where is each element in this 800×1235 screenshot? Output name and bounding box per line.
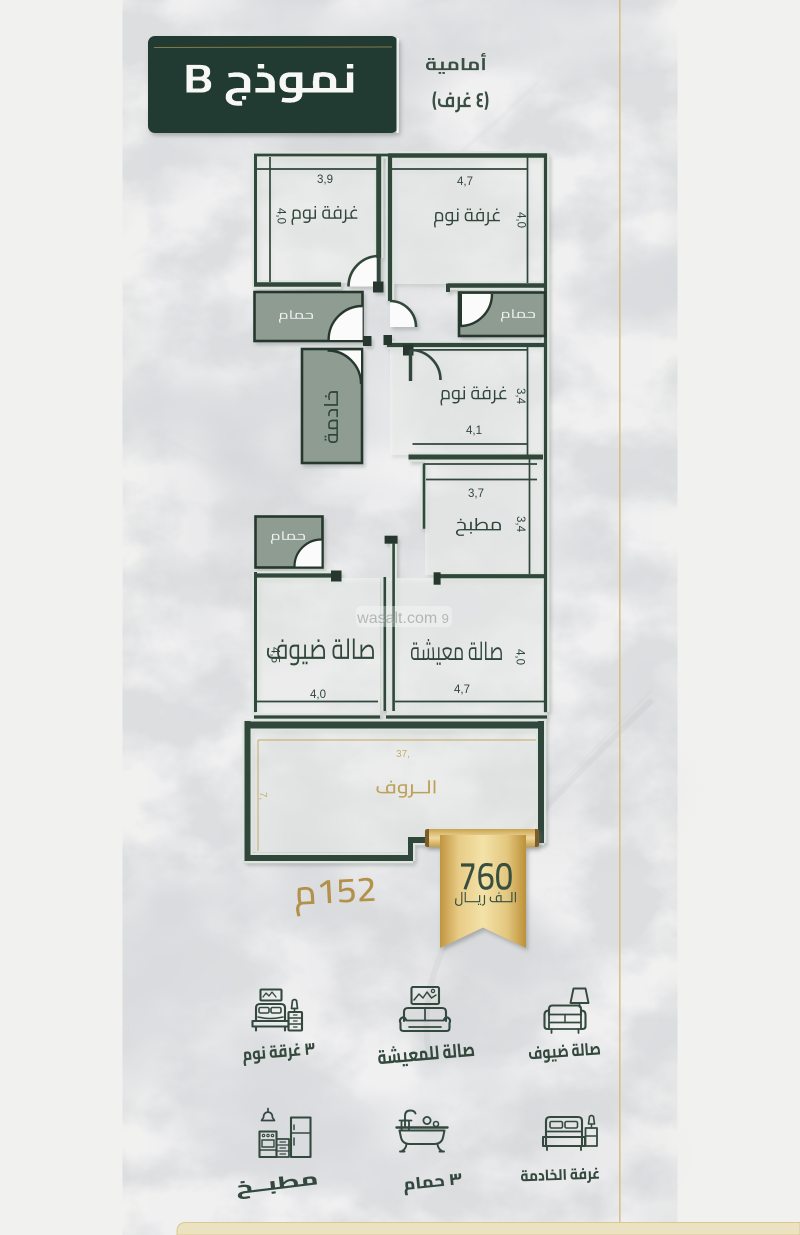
svg-text:3,9: 3,9 [317, 174, 333, 186]
svg-text:4,5: 4,5 [269, 647, 281, 663]
svg-text:wasalt.com 9: wasalt.com 9 [356, 610, 449, 627]
svg-text:4,0: 4,0 [515, 212, 527, 228]
svg-text:4,0: 4,0 [514, 649, 526, 665]
svg-text:3,4: 3,4 [514, 388, 526, 405]
svg-text:4,7: 4,7 [457, 176, 473, 188]
svg-text:3,7: 3,7 [468, 488, 484, 500]
svg-text:3,4: 3,4 [514, 516, 526, 533]
svg-text:4,0: 4,0 [310, 689, 326, 701]
svg-text:4,7: 4,7 [454, 684, 470, 696]
svg-text:37,: 37, [396, 749, 410, 760]
svg-text:7,: 7, [257, 792, 268, 800]
svg-text:4,0: 4,0 [275, 208, 287, 224]
svg-text:4,1: 4,1 [466, 425, 482, 437]
